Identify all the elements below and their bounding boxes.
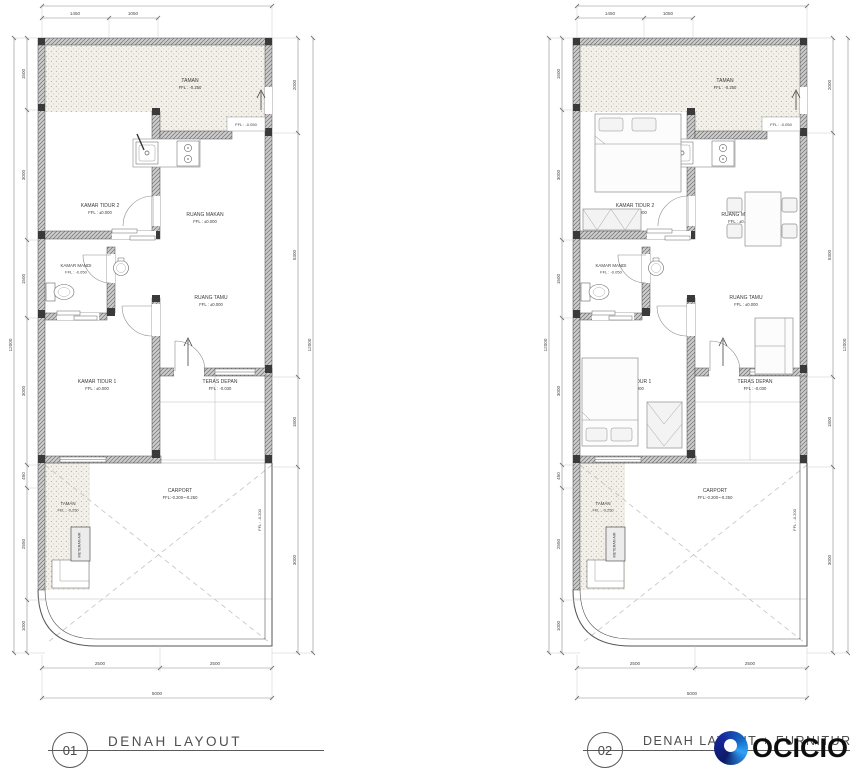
drawing-number-circle: 02	[587, 732, 623, 768]
wardrobe-bedroom2	[583, 209, 641, 230]
drawing-title: DENAH LAYOUT	[108, 734, 242, 749]
floor-plan-01: METERAN AIR TAMAN FFL : -0.250 FFL : -0.…	[0, 0, 330, 710]
title-underline	[48, 750, 324, 751]
floor-plan-02-drawing	[543, 4, 850, 700]
drawing-sheet: METERAN AIR TAMAN FFL : -0.250 FFL : -0.…	[0, 0, 850, 779]
pillow	[586, 428, 607, 441]
drawing-number: 01	[63, 743, 77, 758]
dining-chair	[782, 198, 797, 212]
floor-plan-01-drawing	[8, 4, 315, 700]
bed-bedroom1	[582, 358, 638, 446]
sofa-livingroom	[755, 318, 793, 374]
drawing-number-circle: 01	[52, 732, 88, 768]
floor-plan-02	[535, 0, 850, 710]
dining-chair	[727, 198, 742, 212]
dining-table	[745, 192, 781, 246]
pillow	[611, 428, 632, 441]
watermark: OCICIO	[714, 731, 848, 765]
bed-bedroom2	[595, 114, 681, 192]
watermark-brand: OCICIO	[752, 733, 848, 764]
title-block-01: 01 DENAH LAYOUT	[48, 731, 324, 771]
drawing-number: 02	[598, 743, 612, 758]
ocicio-logo-icon	[714, 731, 748, 765]
pillow	[632, 118, 656, 131]
wardrobe-bedroom1	[647, 402, 682, 448]
pillow	[599, 118, 623, 131]
dining-chair	[782, 224, 797, 238]
dining-chair	[727, 224, 742, 238]
